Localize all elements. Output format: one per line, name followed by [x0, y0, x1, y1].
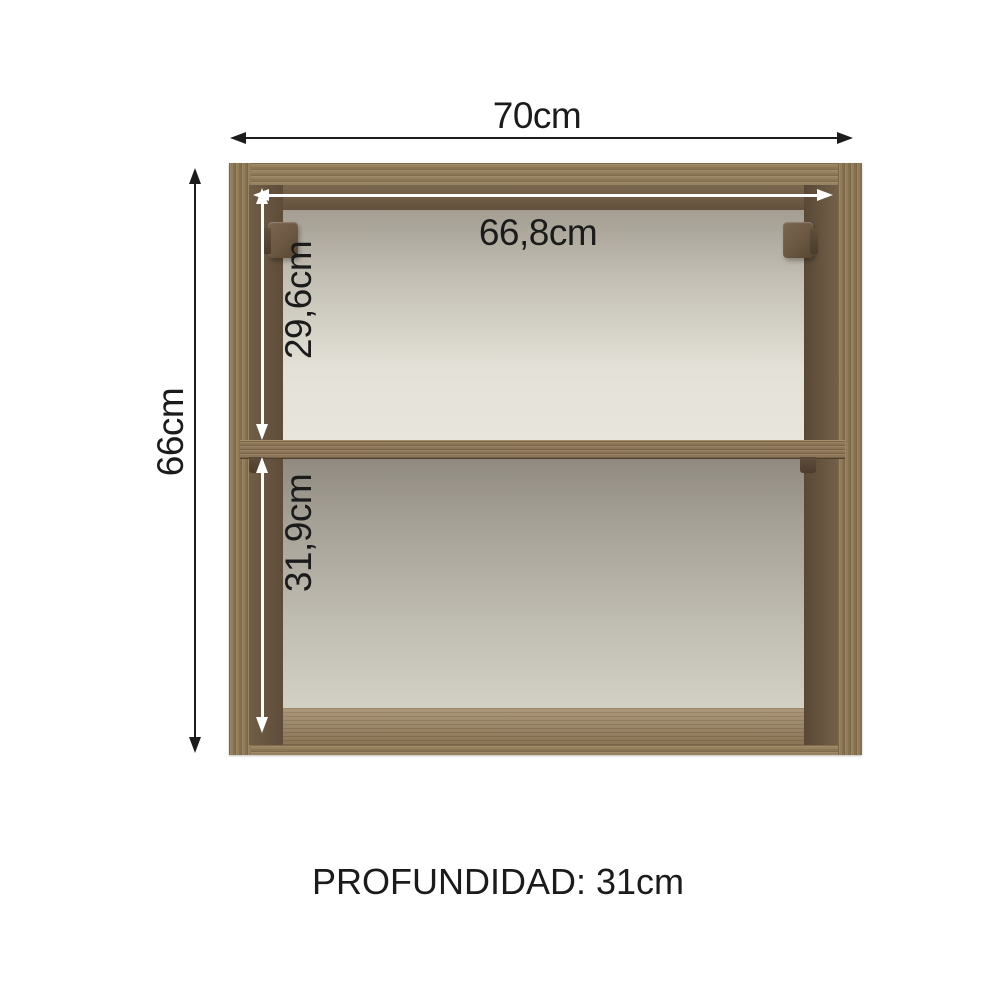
- depth-label: PROFUNDIDAD: 31cm: [312, 861, 684, 903]
- hinge-right-icon: [783, 222, 813, 258]
- arrow-line: [261, 201, 264, 427]
- total-width-label: 70cm: [493, 95, 581, 137]
- total-height-label: 66cm: [150, 388, 192, 476]
- arrow-line: [261, 470, 264, 720]
- arrow-line: [266, 194, 820, 197]
- lower-compartment-height-arrow: [255, 457, 269, 733]
- arrow-head-down-icon: [189, 737, 201, 753]
- inner-width-dimension-arrow: [253, 188, 833, 202]
- upper-compartment-height-arrow: [255, 188, 269, 440]
- arrow-line: [194, 181, 196, 740]
- cabinet-right-side-panel: [838, 163, 862, 755]
- arrow-head-down-icon: [256, 424, 268, 440]
- lower-compartment-height-label: 31,9cm: [278, 474, 320, 592]
- upper-compartment-height-label: 29,6cm: [278, 241, 320, 359]
- arrow-line: [243, 137, 840, 139]
- product-dimension-diagram: 70cm 66cm 66,8cm 29,6cm 31,9cm PROFUNDID…: [0, 0, 1000, 1000]
- cabinet-bottom-interior: [283, 708, 804, 745]
- middle-shelf: [240, 440, 845, 459]
- shelf-support-right: [800, 457, 816, 473]
- arrow-head-down-icon: [256, 717, 268, 733]
- cabinet-left-side-panel: [229, 163, 251, 755]
- arrow-head-right-icon: [837, 132, 853, 144]
- lower-compartment-back-panel: [283, 457, 804, 708]
- inner-width-label: 66,8cm: [479, 212, 597, 254]
- arrow-head-right-icon: [817, 189, 833, 201]
